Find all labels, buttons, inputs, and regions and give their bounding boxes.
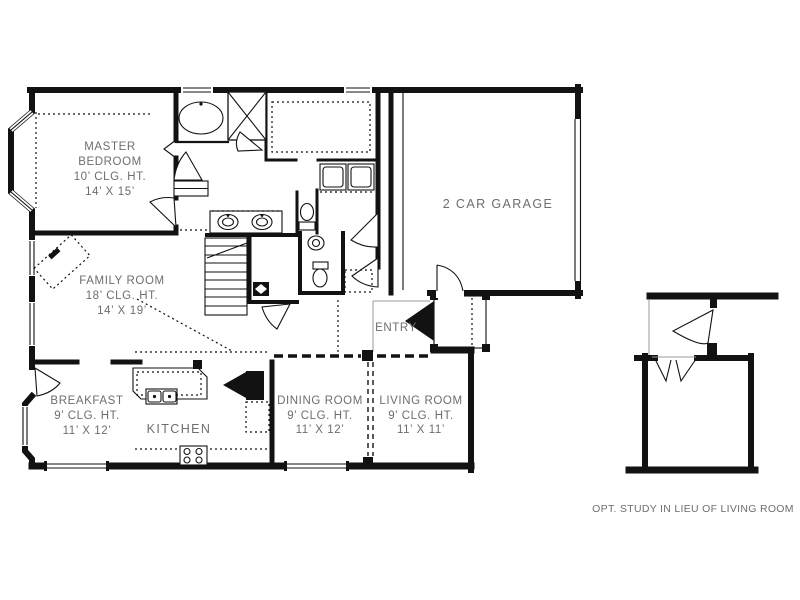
bathtub-fixture [179, 102, 223, 134]
living-room-ceiling: 9’ CLG. HT. [388, 410, 454, 422]
master-bedroom-label-2: BEDROOM [78, 156, 142, 168]
closet-shelving [272, 102, 370, 152]
powder-area-door [352, 258, 378, 287]
study-entry-door [673, 310, 713, 344]
refrigerator-space [246, 402, 269, 432]
study-french-doors [655, 359, 696, 381]
family-room-label: FAMILY ROOM [79, 275, 164, 287]
breakfast-size: 11’ X 12’ [63, 425, 112, 437]
range-fixture [180, 446, 207, 465]
pantry-block [223, 371, 264, 400]
dining-living-walls [272, 350, 432, 467]
inset-caption: OPT. STUDY IN LIEU OF LIVING ROOM [592, 503, 794, 515]
optional-study-inset: OPT. STUDY IN LIEU OF LIVING ROOM [592, 294, 794, 515]
master-bedroom-ceiling: 10’ CLG. HT. [74, 171, 147, 183]
living-room-label: LIVING ROOM [379, 395, 462, 407]
floor-plan-drawing: MASTER BEDROOM 10’ CLG. HT. 14’ X 15’ FA… [0, 0, 800, 600]
breakfast-label: BREAKFAST [50, 395, 123, 407]
dining-room-size: 11’ X 12’ [296, 424, 345, 436]
laundry-appliances [320, 164, 374, 192]
front-entry-door [405, 301, 434, 341]
powder-toilet-fixture [313, 262, 328, 287]
kitchen-island-fixture [133, 360, 207, 404]
garage-label: 2 CAR GARAGE [443, 197, 554, 211]
breakfast-ceiling: 9’ CLG. HT. [54, 410, 120, 422]
staircase [205, 236, 297, 329]
ceiling-break-diagonal [137, 299, 232, 351]
living-room-size: 11’ X 11’ [397, 424, 445, 436]
powder-sink-fixture [308, 236, 324, 250]
master-bedroom-label-1: MASTER [84, 141, 136, 153]
garage-door [572, 119, 584, 281]
master-toilet-fixture [299, 204, 315, 231]
dining-room-label: DINING ROOM [277, 395, 363, 407]
master-bedroom-size: 14’ X 15’ [85, 186, 135, 198]
laundry-hall-door [351, 213, 378, 247]
family-room-ceiling: 18’ CLG. HT. [86, 290, 159, 302]
vanity-sinks-fixture [210, 211, 282, 233]
entry-label: ENTRY [375, 322, 417, 334]
kitchen-dining-door [223, 372, 246, 398]
shower-fixture [228, 92, 266, 140]
garage-entry-door [436, 265, 464, 298]
master-bedroom-door [150, 198, 176, 228]
dining-room-ceiling: 9’ CLG. HT. [287, 410, 353, 422]
family-room-size: 14’ X 19’ [97, 305, 147, 317]
kitchen-label: KITCHEN [147, 422, 212, 436]
linen-closet [174, 181, 208, 196]
floor-plan-sheet: MASTER BEDROOM 10’ CLG. HT. 14’ X 15’ FA… [0, 0, 800, 600]
